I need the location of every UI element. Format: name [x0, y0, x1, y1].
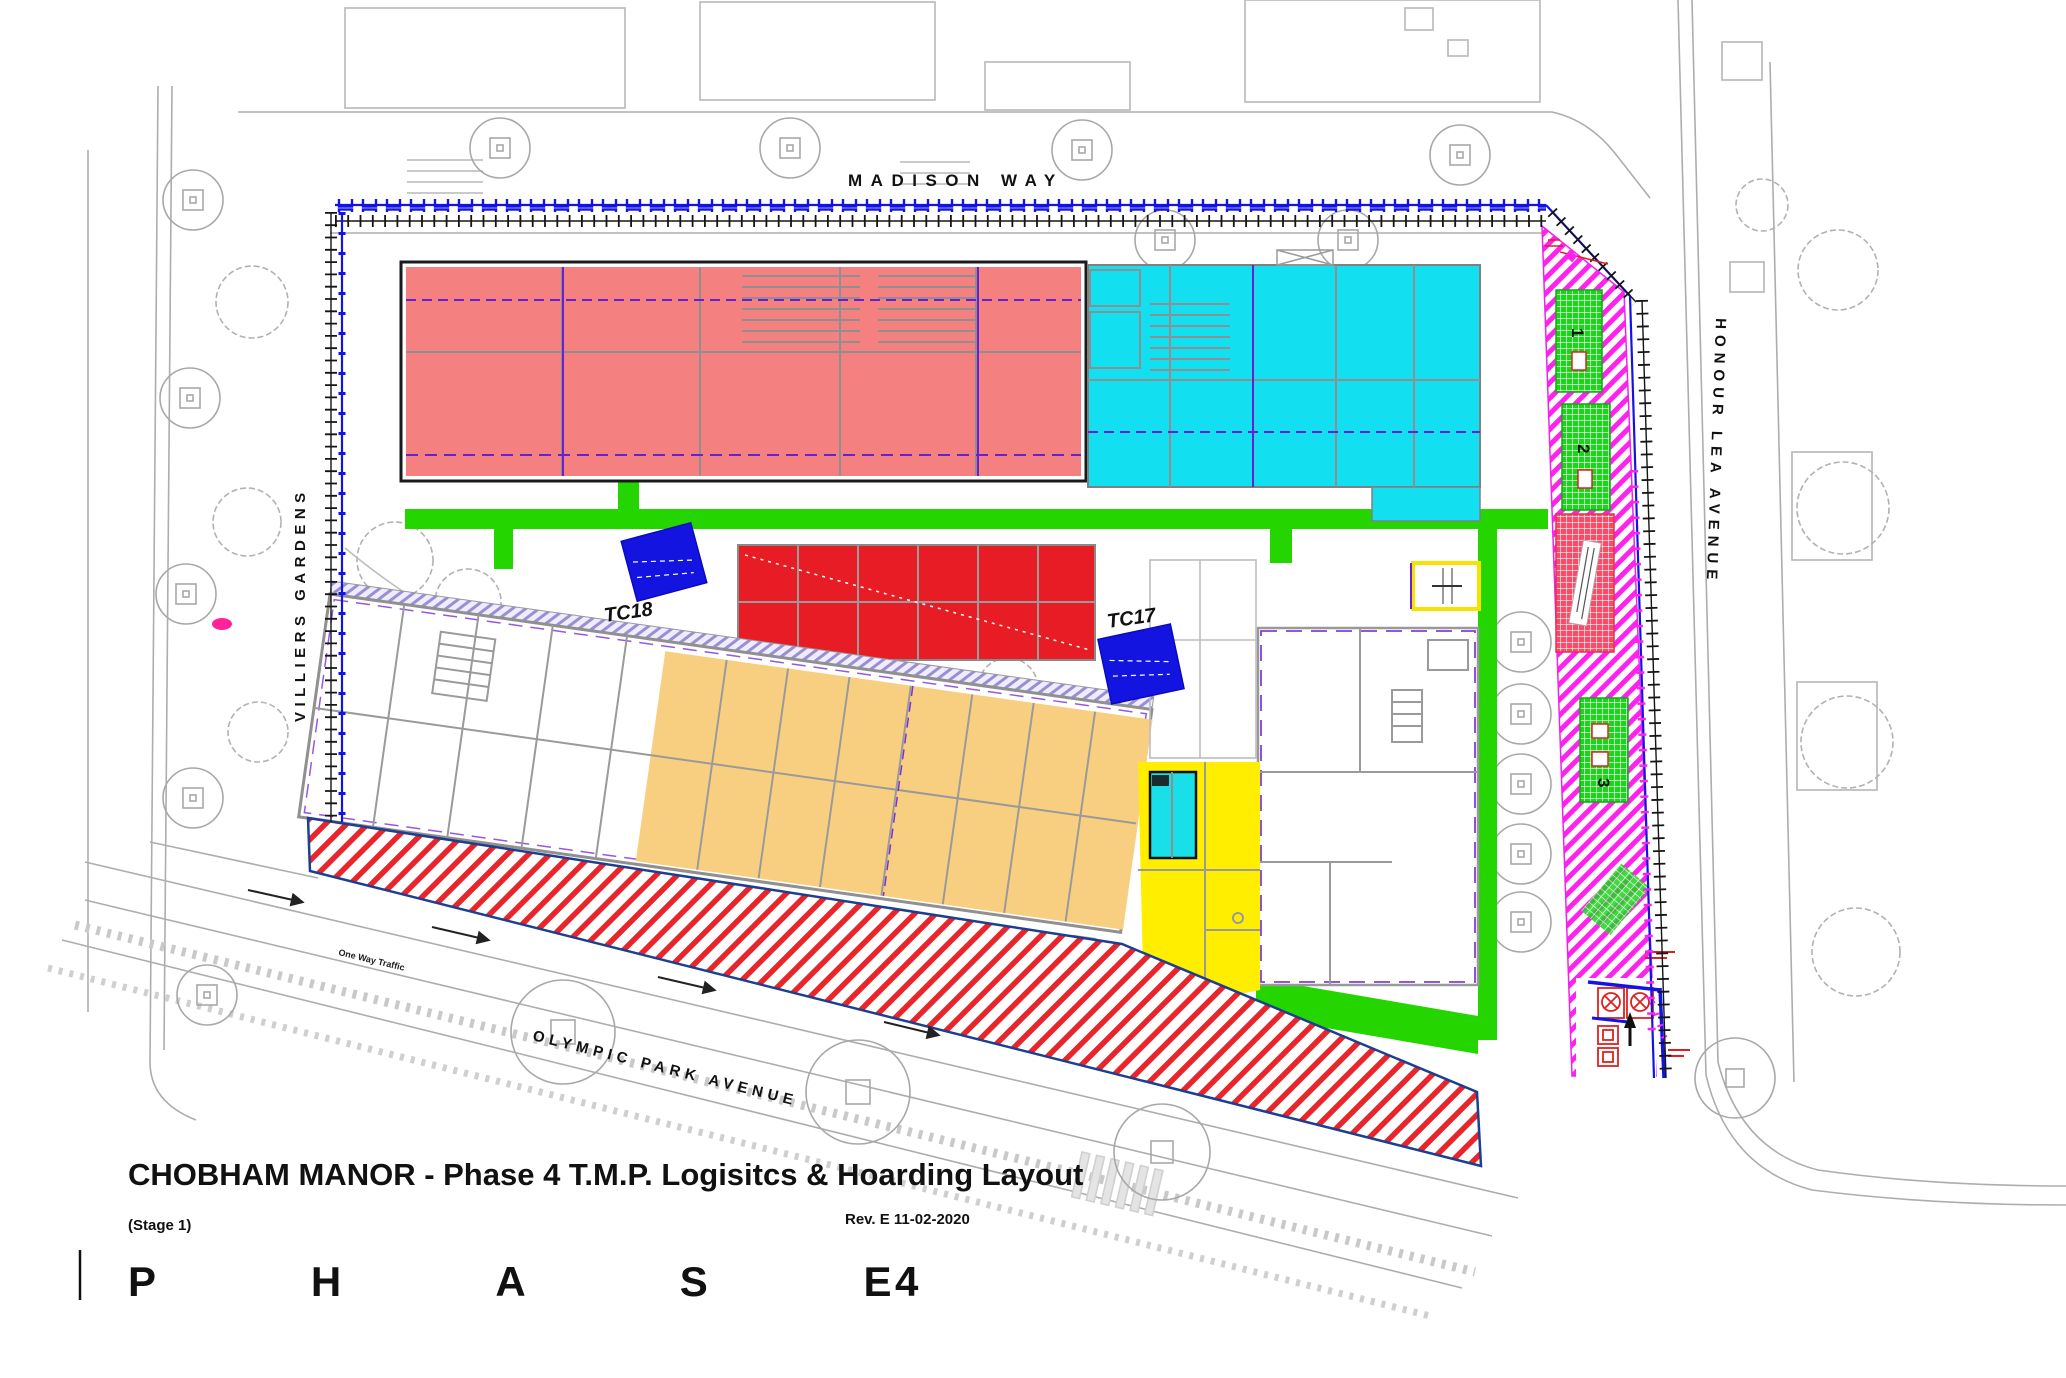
crane-tc18-label: TC18 — [603, 598, 655, 627]
street-tree — [1430, 125, 1490, 185]
street-tree — [163, 768, 223, 828]
street-label-madison-way: MADISON WAY — [848, 171, 1064, 190]
walkway-stub-c — [1270, 529, 1292, 563]
north-buildings — [345, 0, 1540, 193]
street-tree — [163, 170, 223, 230]
storage-block-3: 3 — [1580, 698, 1628, 802]
building-block-cyan — [1088, 250, 1480, 521]
site-plan-canvas: 1 2 3 — [0, 0, 2066, 1378]
storage-block-2-label: 2 — [1574, 444, 1593, 453]
building-block-salmon — [401, 262, 1086, 481]
title-block: CHOBHAM MANOR - Phase 4 T.M.P. Logisitcs… — [80, 1157, 1083, 1305]
street-label-honour-lea-avenue: HONOUR LEA AVENUE — [1703, 318, 1729, 586]
cyan-fill — [1088, 265, 1480, 487]
east-planters — [1722, 42, 1877, 790]
site-tree — [1491, 684, 1551, 744]
pedestrian-crossing — [1072, 1152, 1163, 1215]
hoist-label-plate — [1152, 775, 1169, 786]
building-block-red — [738, 545, 1095, 660]
turnstile-1 — [1598, 988, 1624, 1018]
site-tree — [1491, 754, 1551, 814]
crane-tc18-base — [621, 523, 707, 602]
walkway-stub-b — [494, 529, 513, 569]
phase-number: 4 — [895, 1258, 919, 1305]
street-label-villiers-gardens: VILLIERS GARDENS — [292, 487, 309, 722]
street-tree — [760, 118, 820, 178]
street-tree — [1135, 210, 1195, 270]
storage-block-3-label: 3 — [1594, 778, 1613, 787]
phase-word: P H A S E — [128, 1258, 964, 1305]
cyan-lobe — [1372, 487, 1480, 521]
crane-tc17-base — [1098, 624, 1184, 704]
hoist-unit — [1150, 772, 1196, 858]
building-southeast-block — [1258, 628, 1478, 985]
laydown-strip: 1 2 3 — [1542, 226, 1656, 1076]
site-tree — [1491, 824, 1551, 884]
street-tree — [156, 564, 216, 624]
storage-block-1: 1 — [1556, 290, 1602, 392]
drawing-title: CHOBHAM MANOR - Phase 4 T.M.P. Logisitcs… — [128, 1157, 1083, 1192]
site-tree — [1491, 612, 1551, 672]
site-tree — [1491, 892, 1551, 952]
drawing-stage: (Stage 1) — [128, 1217, 191, 1234]
electrician-cabin — [1411, 563, 1479, 609]
drawing-revision: Rev. E 11-02-2020 — [845, 1211, 970, 1228]
storage-block-red — [1556, 514, 1614, 652]
street-tree — [177, 965, 237, 1025]
street-tree — [470, 118, 530, 178]
plan-drawing: 1 2 3 — [0, 0, 2066, 1378]
pink-marker-dot — [212, 618, 232, 630]
honour-lea-curbs — [1678, 0, 2066, 1205]
hoarding-north — [335, 199, 1546, 221]
villiers-gardens-curbs — [88, 86, 196, 1120]
storage-block-1-label: 1 — [1568, 328, 1587, 337]
storage-block-2: 2 — [1562, 404, 1610, 510]
